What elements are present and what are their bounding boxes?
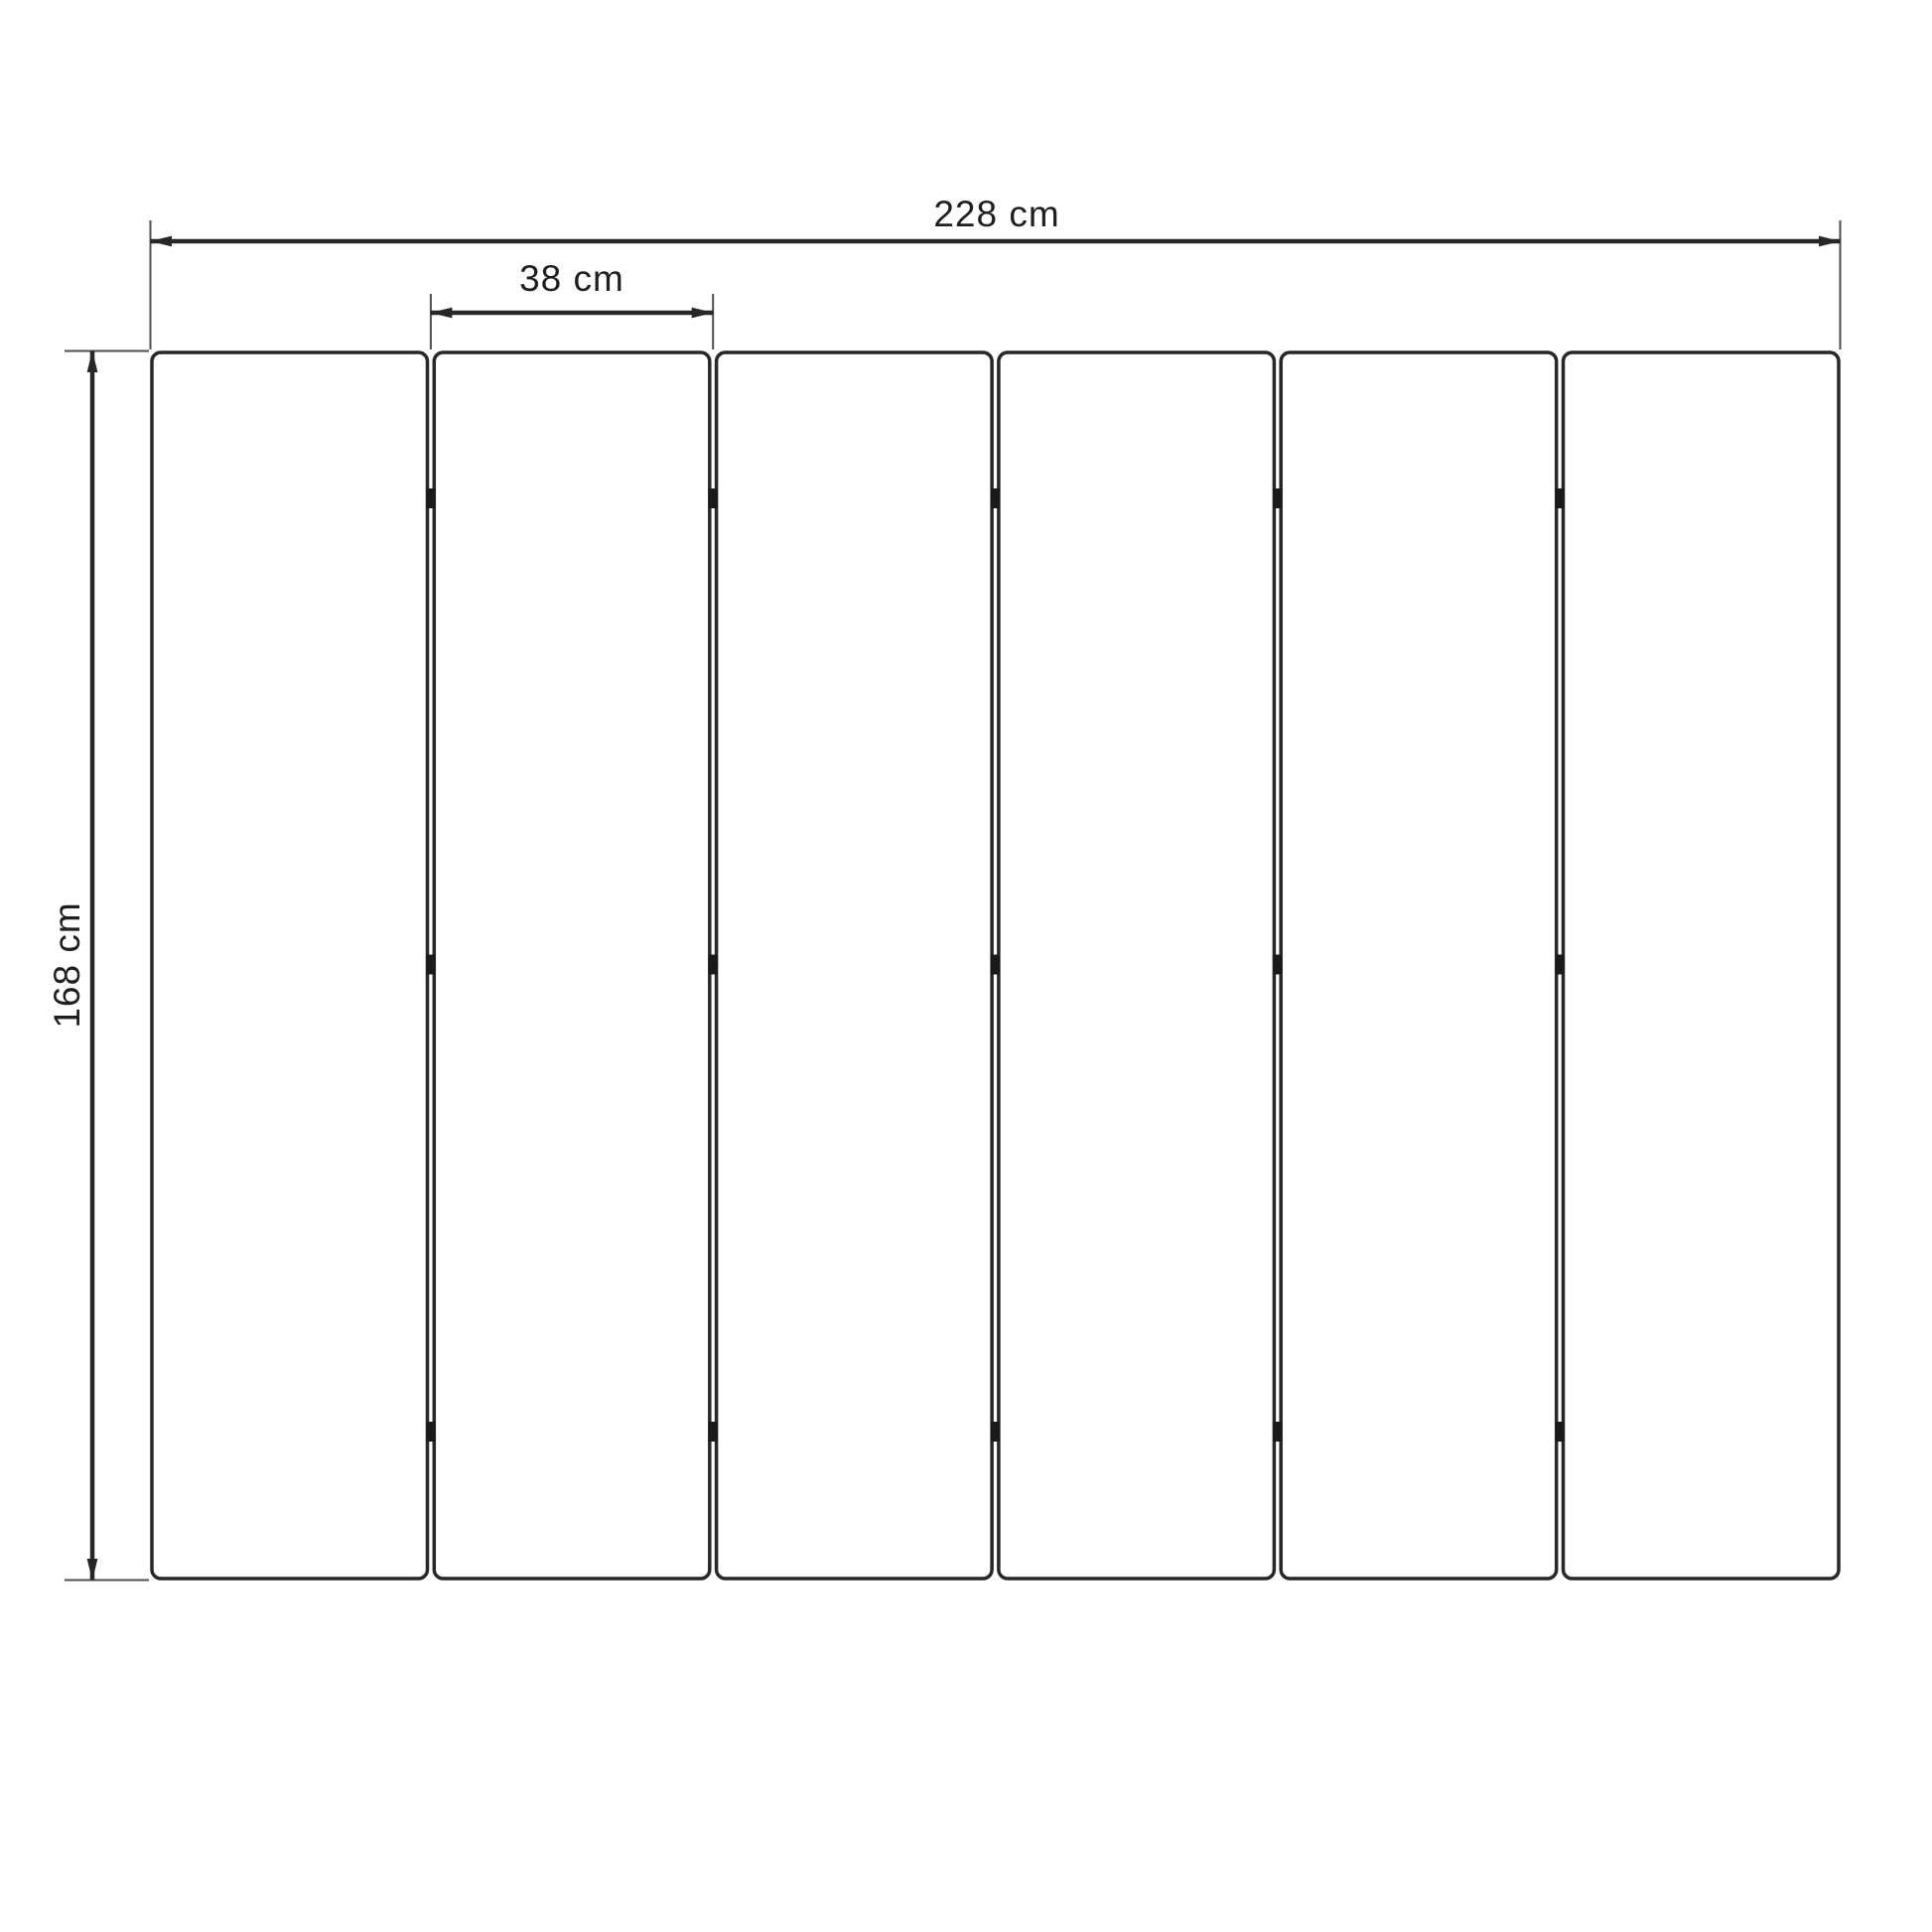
panel-1 (152, 352, 428, 1579)
hinge-icon (1556, 1422, 1565, 1442)
six-panel-screen-diagram: 228 cm 38 cm 168 cm (0, 0, 1932, 1932)
panel-2 (434, 352, 710, 1579)
panel-6 (1564, 352, 1840, 1579)
hinge-icon (709, 488, 718, 508)
panel-width-label: 38 cm (519, 258, 624, 299)
hinge-icon (709, 1422, 718, 1442)
hinge-icon (1273, 488, 1282, 508)
hinge-icon (1273, 955, 1282, 975)
panel-3 (717, 352, 993, 1579)
hinge-icon (1556, 955, 1565, 975)
hinge-icon (426, 1422, 435, 1442)
hinge-icon (991, 1422, 1000, 1442)
panel-4 (999, 352, 1275, 1579)
hinge-icon (1273, 1422, 1282, 1442)
panel-5 (1281, 352, 1557, 1579)
hinge-icon (426, 955, 435, 975)
panel-width-dimension: 38 cm (431, 258, 713, 349)
dimension-drawing-canvas: 228 cm 38 cm 168 cm (0, 0, 1932, 1932)
hinge-icon (991, 955, 1000, 975)
hinge-icon (426, 488, 435, 508)
height-dimension: 168 cm (47, 351, 149, 1581)
hinge-icon (1556, 488, 1565, 508)
total-width-label: 228 cm (933, 194, 1059, 234)
hinge-icon (709, 955, 718, 975)
height-label: 168 cm (47, 901, 87, 1028)
total-width-dimension: 228 cm (151, 194, 1841, 349)
hinge-icon (991, 488, 1000, 508)
